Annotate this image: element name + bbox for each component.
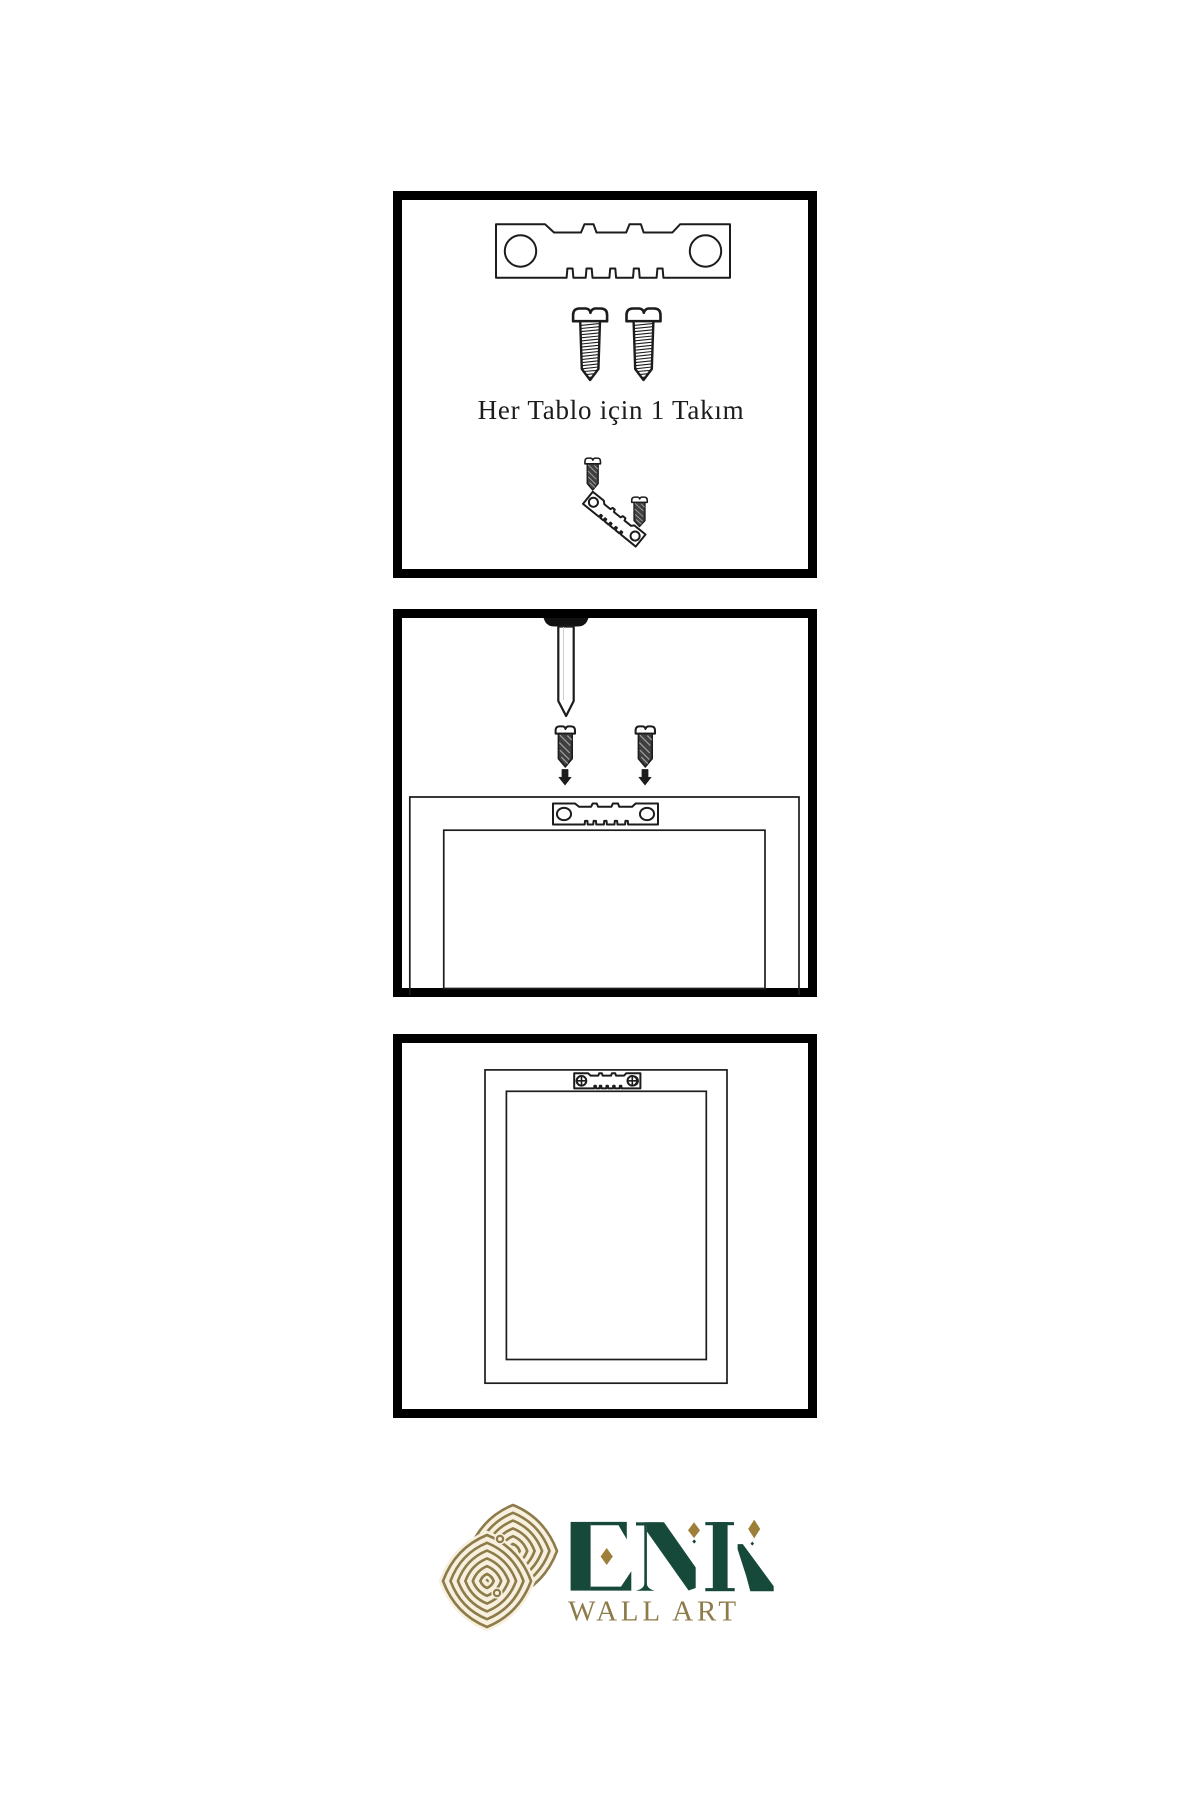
svg-text:WALL ART: WALL ART <box>568 1596 740 1628</box>
svg-text:Her Tablo için 1 Takım: Her Tablo için 1 Takım <box>478 395 745 425</box>
